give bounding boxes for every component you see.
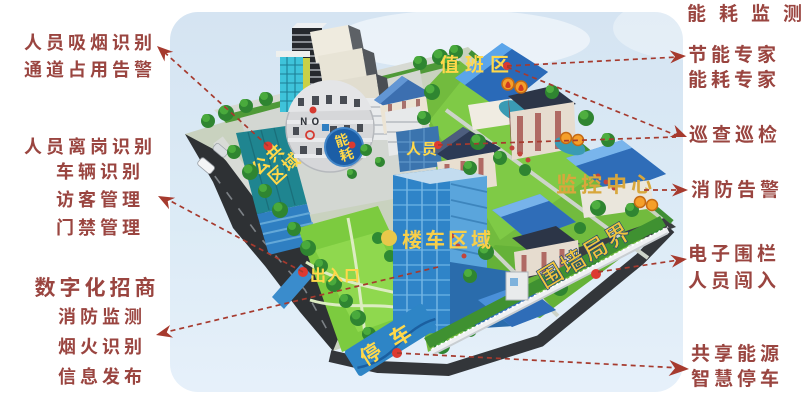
svg-text:能耗专家: 能耗专家	[688, 65, 780, 92]
svg-text:人员闯入: 人员闯入	[688, 266, 780, 293]
svg-text:监控中心: 监控中心	[556, 169, 656, 199]
svg-text:电子围栏: 电子围栏	[688, 239, 780, 266]
svg-text:节能专家: 节能专家	[688, 40, 780, 67]
svg-text:值班区: 值班区	[440, 50, 515, 77]
svg-text:车辆识别: 车辆识别	[56, 158, 144, 184]
svg-text:巡查巡检: 巡查巡检	[689, 120, 781, 147]
svg-text:出入口: 出入口	[310, 262, 361, 286]
svg-text:信息发布: 信息发布	[58, 363, 146, 389]
svg-text:门禁管理: 门禁管理	[56, 214, 144, 240]
svg-text:能耗监测: 能耗监测	[687, 0, 808, 26]
svg-text:消防告警: 消防告警	[691, 175, 783, 202]
svg-text:访客管理: 访客管理	[56, 186, 144, 212]
svg-text:人员离岗识别: 人员离岗识别	[24, 133, 156, 159]
svg-text:人员吸烟识别: 人员吸烟识别	[24, 29, 156, 55]
svg-text:人员: 人员	[406, 138, 438, 159]
svg-text:数字化招商: 数字化招商	[35, 272, 160, 302]
svg-text:智慧停车: 智慧停车	[691, 364, 783, 391]
svg-text:烟火识别: 烟火识别	[58, 333, 146, 359]
svg-text:NO: NO	[300, 113, 323, 128]
svg-text:通道占用告警: 通道占用告警	[24, 56, 156, 82]
svg-text:楼车区域: 楼车区域	[402, 224, 494, 253]
svg-text:消防监测: 消防监测	[58, 303, 146, 329]
svg-text:共享能源: 共享能源	[691, 339, 783, 366]
